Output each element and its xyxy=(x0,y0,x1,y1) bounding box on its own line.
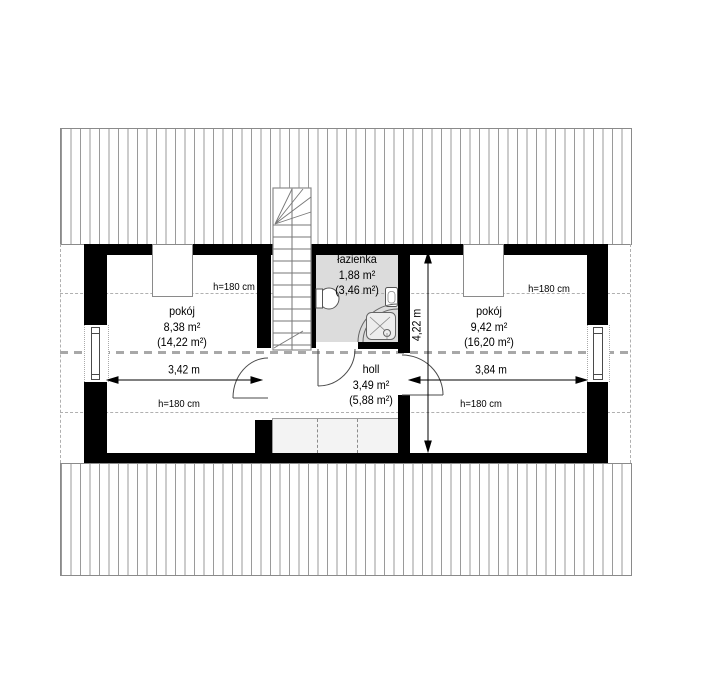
hall-name: holl xyxy=(349,362,393,378)
doors xyxy=(233,349,443,398)
room-left-name: pokój xyxy=(157,304,207,320)
bathroom-area-floor: (3,46 m²) xyxy=(335,283,379,299)
room-right-label: pokój 9,42 m² (16,20 m²) xyxy=(464,304,514,351)
dim-arrow xyxy=(410,377,421,383)
plan-vector-overlay xyxy=(0,0,702,691)
room-right-name: pokój xyxy=(464,304,514,320)
height-label-bottom-right: h=180 cm xyxy=(460,398,502,410)
dim-arrow xyxy=(425,253,431,264)
door-right-room xyxy=(402,355,443,395)
hall-area: 3,49 m² xyxy=(349,377,393,393)
dim-right-room-width: 3,84 m xyxy=(475,363,507,379)
hall-area-floor: (5,88 m²) xyxy=(349,393,393,409)
floor-plan: pokój 8,38 m² (14,22 m²) łazienka 1,88 m… xyxy=(0,0,702,691)
room-right-area: 9,42 m² xyxy=(464,319,514,335)
staircase xyxy=(273,188,311,350)
dim-arrow xyxy=(108,377,119,383)
shower xyxy=(358,304,398,342)
height-label-top-left: h=180 cm xyxy=(213,281,255,293)
dim-arrow xyxy=(576,377,587,383)
bathroom-area: 1,88 m² xyxy=(335,267,379,283)
dim-left-room-width: 3,42 m xyxy=(168,363,200,379)
hall-label: holl 3,49 m² (5,88 m²) xyxy=(349,362,393,409)
dim-interior-depth: 4,22 m xyxy=(410,309,426,341)
shower-tray xyxy=(367,313,396,340)
room-left-label: pokój 8,38 m² (14,22 m²) xyxy=(157,304,207,351)
bathroom-label: łazienka 1,88 m² (3,46 m²) xyxy=(335,252,379,299)
height-label-top-right: h=180 cm xyxy=(528,283,570,295)
dim-arrow xyxy=(425,441,431,452)
room-left-area: 8,38 m² xyxy=(157,319,207,335)
dim-arrow xyxy=(251,377,262,383)
room-left-area-floor: (14,22 m²) xyxy=(157,335,207,351)
bathroom-name: łazienka xyxy=(335,252,379,268)
room-right-area-floor: (16,20 m²) xyxy=(464,335,514,351)
height-label-bottom-left: h=180 cm xyxy=(158,398,200,410)
